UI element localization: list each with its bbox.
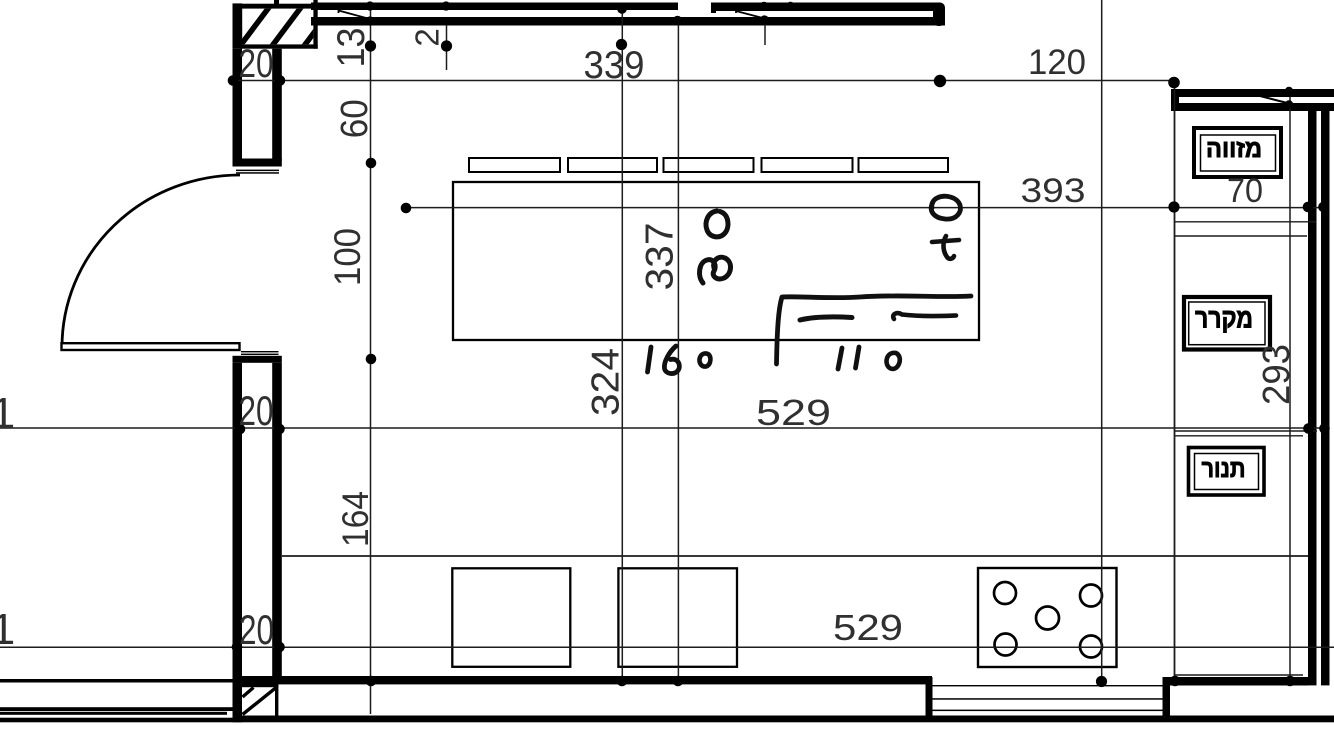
svg-text:337: 337	[639, 223, 682, 291]
svg-text:120: 120	[1028, 43, 1086, 82]
svg-text:20: 20	[239, 42, 274, 86]
svg-text:13: 13	[330, 28, 373, 68]
svg-text:529: 529	[833, 607, 903, 648]
svg-text:תנור: תנור	[1202, 455, 1246, 483]
svg-text:393: 393	[1021, 172, 1086, 210]
svg-text:70: 70	[1227, 172, 1263, 210]
svg-text:339: 339	[584, 44, 645, 87]
svg-text:60: 60	[334, 99, 376, 138]
svg-text:20: 20	[239, 606, 274, 653]
svg-text:164: 164	[335, 491, 376, 547]
svg-text:529: 529	[756, 392, 831, 433]
svg-text:293: 293	[1256, 344, 1298, 405]
svg-text:324: 324	[585, 348, 628, 416]
svg-text:2: 2	[409, 28, 446, 46]
svg-text:מקרר: מקרר	[1195, 304, 1253, 334]
svg-text:1: 1	[0, 605, 15, 654]
svg-text:מזווה: מזווה	[1206, 135, 1262, 163]
svg-text:20: 20	[239, 387, 274, 434]
svg-text:1: 1	[0, 389, 15, 438]
svg-text:100: 100	[327, 228, 368, 286]
